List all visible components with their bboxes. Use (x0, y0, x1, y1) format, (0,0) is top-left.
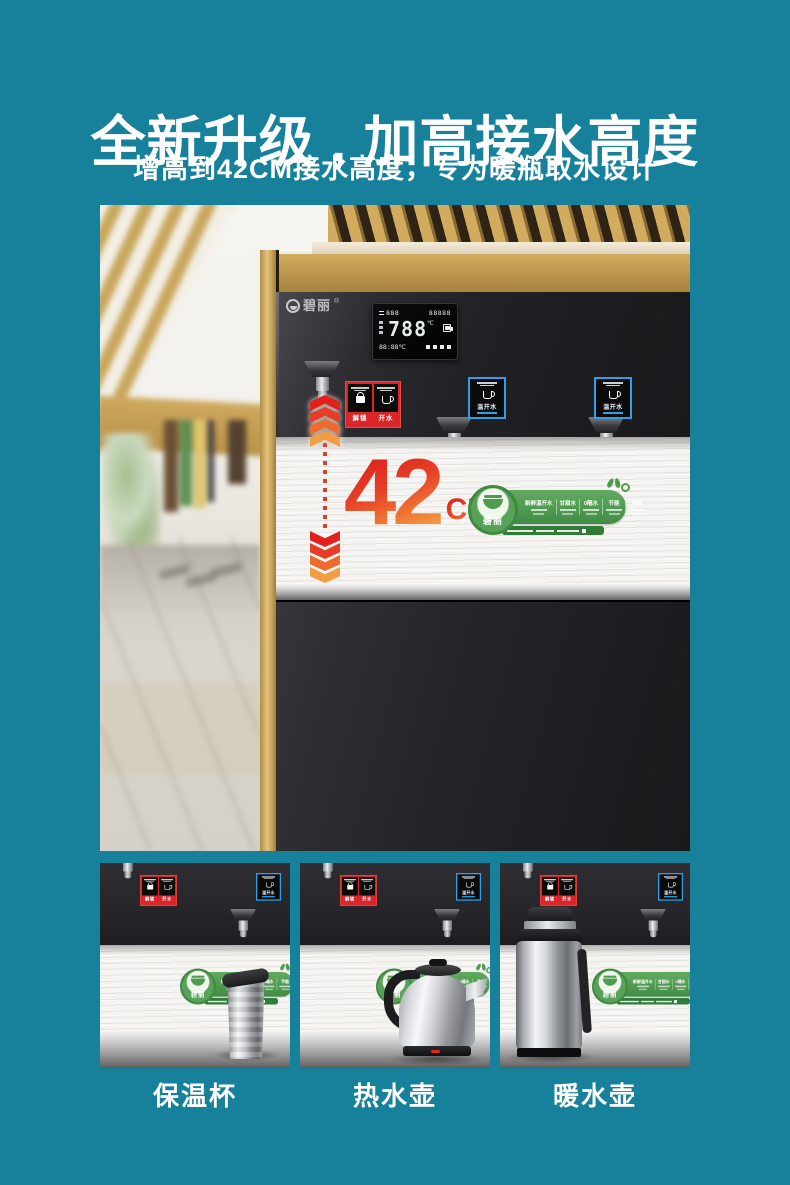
tiny-caption-lines (561, 878, 574, 881)
thermos-body (516, 941, 582, 1050)
height-dotted-line (323, 443, 327, 529)
badge-brand-name: 碧丽 (191, 989, 205, 998)
display-row-top: 888 88888 (379, 309, 451, 317)
badge-brand-name: 碧丽 (483, 514, 503, 527)
hallway-door (164, 420, 178, 512)
faucet-slot (230, 909, 256, 937)
tumbler-body (226, 982, 266, 1059)
kettle-power-light (431, 1050, 440, 1053)
wood-beam (276, 254, 690, 292)
faucet-spout (324, 872, 331, 879)
cup-icon (382, 396, 391, 404)
faucet-slot (114, 863, 141, 878)
lock-icon (547, 885, 553, 890)
blue-label-slot: 温开水 (594, 377, 632, 419)
blue-underline (262, 896, 275, 897)
tiny-caption-lines (544, 878, 557, 881)
warm-water-tap-panel: 温开水 (468, 377, 506, 419)
leaf-icon (606, 478, 622, 491)
feature-item: 甘甜水 (556, 499, 580, 515)
unlock-button (542, 877, 558, 895)
faucet-mount-plate (434, 909, 460, 921)
gallery-panel-thermal-cup: 解锁 开水 温开水 新鲜温开水 甘甜水 0隔水 节能 (100, 863, 290, 1068)
hot-water-tap-panel: 解锁 开水 (540, 875, 577, 906)
bowl-icon (603, 979, 617, 986)
gallery-panel-thermos: 解锁 开水 温开水 新鲜温开水 甘甜水 0隔水 节能 (500, 863, 690, 1068)
feature-item: 新鲜温开水 (631, 979, 655, 991)
blue-underline (477, 412, 497, 414)
unlock-button (348, 384, 372, 412)
kettle-knob (429, 959, 447, 966)
kettle-body (399, 974, 475, 1047)
page-subtitle: 增高到42CM接水高度，专为暖瓶取水设计 (0, 147, 790, 186)
faucet-spout (650, 931, 656, 937)
height-arrows-down (310, 531, 340, 579)
hallway-wall-mural (102, 433, 160, 545)
display-indicator-column (379, 321, 383, 334)
gallery-caption: 保温杯 (100, 1076, 290, 1113)
warm-water-tap-panel: 温开水 (658, 873, 683, 901)
warm-water-label: 温开水 (664, 890, 677, 896)
blue-label-slot: 温开水 (456, 873, 481, 901)
faucet-spout (240, 931, 246, 937)
unlock-button (342, 877, 358, 895)
cup-icon (609, 391, 618, 399)
feature-label: 甘甜水 (560, 499, 577, 507)
display-unit: ℃ (427, 320, 434, 327)
water-faucet (514, 863, 541, 878)
height-value: 42 (344, 453, 441, 532)
unlock-label: 解锁 (342, 896, 358, 904)
water-faucet (230, 909, 256, 937)
faucet-spout (124, 872, 131, 879)
hallway-blur-layer (100, 205, 260, 851)
tiny-caption-lines (350, 386, 369, 391)
blue-label-slot: 温开水 (658, 873, 683, 901)
tiny-caption-lines (144, 878, 157, 881)
hallway-far-door (228, 420, 246, 484)
feature-label: 环保 (632, 499, 643, 507)
feature-label: 新鲜温开水 (633, 979, 653, 985)
tiny-caption-lines (161, 878, 174, 881)
blue-label-slot: 温开水 (256, 873, 281, 901)
feature-badge: 新鲜温开水 甘甜水 0隔水 节能 环保 碧丽 (592, 967, 690, 1009)
faucet-body (123, 863, 133, 872)
blue-label-slot: 温开水 (468, 377, 506, 419)
cup-icon (564, 885, 570, 890)
hot-water-tap-panel: 解锁 开水 (340, 875, 377, 906)
tiny-caption-lines (602, 381, 624, 386)
feature-label: 0隔水 (676, 979, 686, 985)
hot-water-button (159, 877, 175, 895)
display-segment-icon (379, 311, 384, 315)
warm-water-tap-panel: 温开水 (456, 873, 481, 901)
cup-icon (483, 391, 492, 399)
faucet-mount-plate (230, 909, 256, 921)
faucet-mount-plate (436, 417, 472, 433)
water-faucet (640, 909, 666, 937)
tiny-caption-lines (376, 386, 395, 391)
hot-water-tap-panel: 解锁 开水 (140, 875, 177, 906)
faucet-slot (514, 863, 541, 878)
warm-water-label: 温开水 (477, 402, 497, 411)
brand-logo: 碧丽 ® (286, 298, 339, 314)
ring-icon (621, 483, 630, 492)
control-display: 888 88888 788 ℃ 88:88℃ (372, 303, 458, 360)
hallway-pillar (194, 420, 206, 508)
leaf-icon (279, 963, 290, 972)
display-row-main: 788 ℃ (379, 319, 451, 339)
feature-label: 甘甜水 (658, 979, 670, 985)
display-value: 888 (386, 309, 399, 317)
cup-icon (364, 885, 370, 890)
hot-water-label: 开水 (159, 896, 175, 904)
feature-item: 节能 (602, 499, 625, 515)
blue-underline (462, 896, 475, 897)
display-row-bottom: 88:88℃ (379, 343, 451, 351)
faucet-slot (434, 909, 460, 937)
red-label-slot: 解锁 开水 (540, 875, 577, 906)
faucet-body (648, 920, 657, 931)
gallery-panel-kettle: 解锁 开水 温开水 新鲜温开水 甘甜水 0隔水 节能 (300, 863, 490, 1068)
faucet-mount-plate (640, 909, 666, 921)
gallery-caption: 热水壶 (300, 1076, 490, 1113)
warm-water-label: 温开水 (262, 890, 275, 896)
dispenser-lower-cabinet (276, 600, 690, 851)
ceiling-trim (312, 242, 690, 254)
water-faucet (314, 863, 341, 878)
unlock-button (142, 877, 158, 895)
feature-item: 节能 (277, 979, 290, 991)
thermos-base (517, 1048, 581, 1057)
badge-brand-name: 碧丽 (603, 989, 617, 998)
faucet-body (238, 920, 247, 931)
feature-item: 新鲜温开水 (522, 499, 556, 515)
tumbler-image (226, 971, 266, 1059)
lock-icon (356, 396, 365, 403)
brand-logo-icon (286, 299, 300, 313)
faucet-body (323, 863, 333, 872)
unlock-label: 解锁 (142, 896, 158, 904)
red-label-slot: 解锁 开水 (140, 875, 177, 906)
red-label-slot: 解锁 开水 (340, 875, 377, 906)
cup-icon (266, 882, 272, 887)
bowl-icon (191, 979, 205, 986)
badge-tagline-strip (616, 998, 689, 1004)
unlock-label: 解锁 (348, 413, 372, 425)
faucet-body (316, 376, 329, 391)
height-arrows-up (310, 395, 340, 443)
feature-item: 0隔水 (579, 499, 602, 515)
hot-water-label: 开水 (359, 896, 375, 904)
hallway-door (180, 420, 192, 506)
hot-water-button (374, 384, 398, 412)
cup-icon (668, 882, 674, 887)
hot-water-label: 开水 (374, 413, 398, 425)
hot-water-button (559, 877, 575, 895)
faucet-body (442, 920, 451, 931)
hero-product-photo: 碧丽 ® 888 88888 788 ℃ 88:88℃ (100, 205, 690, 851)
red-label-slot: 解锁 开水 (345, 381, 401, 428)
warm-water-tap-panel: 温开水 (256, 873, 281, 901)
badge-strip-icon (582, 529, 586, 533)
hallway-door (208, 420, 214, 502)
cup-icon (164, 885, 170, 890)
bowl-icon (483, 499, 503, 509)
brand-circle-icon: 碧丽 (468, 485, 518, 535)
badge-strip-icon (674, 1000, 677, 1003)
hallway-background (100, 205, 260, 851)
feature-item: 0隔水 (672, 979, 689, 991)
badge-slot-main: 新鲜温开水 甘甜水 0隔水 节能 环保 碧丽 (468, 483, 626, 541)
feature-label: 节能 (609, 499, 620, 507)
battery-icon (443, 324, 451, 332)
gold-door-frame (260, 250, 276, 851)
hallway-floor-tiles (100, 537, 260, 851)
water-faucet (114, 863, 141, 878)
hot-water-tap-panel: 解锁 开水 (345, 381, 401, 428)
warm-water-tap-panel: 温开水 (594, 377, 632, 419)
hot-water-label: 开水 (559, 896, 575, 904)
wood-slat-grille (328, 205, 690, 242)
blue-underline (664, 896, 677, 897)
silver-counter-strip (276, 583, 690, 600)
tiny-caption-lines (344, 878, 357, 881)
feature-item: 环保 (625, 499, 648, 515)
faucet-body (523, 863, 533, 872)
brand-circle-icon: 碧丽 (592, 968, 628, 1004)
feature-badge: 新鲜温开水 甘甜水 0隔水 节能 环保 碧丽 (468, 483, 626, 541)
tiny-caption-lines (663, 876, 678, 879)
lock-icon (147, 885, 153, 890)
faucet-mount-plate (588, 417, 624, 433)
feature-label: 新鲜温开水 (525, 499, 553, 507)
faucet-slot (314, 863, 341, 878)
feature-label: 0隔水 (584, 499, 598, 507)
feature-label: 节能 (281, 979, 289, 985)
warm-water-label: 温开水 (603, 402, 623, 411)
registered-mark: ® (334, 298, 339, 306)
tiny-caption-lines (476, 381, 498, 386)
faucet-spout (524, 872, 531, 879)
display-temperature: 788 (388, 319, 427, 339)
display-status-squares (426, 345, 451, 349)
badge-tagline-strip (502, 526, 604, 535)
unlock-label: 解锁 (542, 896, 558, 904)
lock-icon (347, 885, 353, 890)
blue-underline (603, 412, 623, 414)
thermos-image (516, 907, 586, 1059)
badge-slot: 新鲜温开水 甘甜水 0隔水 节能 环保 碧丽 (592, 967, 690, 1009)
tiny-caption-lines (361, 878, 374, 881)
water-faucet (434, 909, 460, 937)
thermos-cup-cap (528, 907, 572, 922)
display-clock: 88:88℃ (379, 343, 406, 351)
tiny-caption-lines (261, 876, 276, 879)
gallery-caption: 暖水壶 (500, 1076, 690, 1113)
feature-item: 节能 (689, 979, 690, 991)
display-value: 88888 (429, 309, 451, 317)
kettle-image (384, 961, 490, 1061)
brand-circle-icon: 碧丽 (180, 968, 216, 1004)
cup-icon (466, 882, 472, 887)
faucet-slot (640, 909, 666, 937)
faucet-spout (444, 931, 450, 937)
tiny-caption-lines (461, 876, 476, 879)
warm-water-label: 温开水 (462, 890, 475, 896)
brand-logo-text: 碧丽 (303, 298, 331, 314)
hot-water-button (359, 877, 375, 895)
faucet-mount-plate (304, 361, 340, 377)
feature-item: 甘甜水 (655, 979, 672, 991)
